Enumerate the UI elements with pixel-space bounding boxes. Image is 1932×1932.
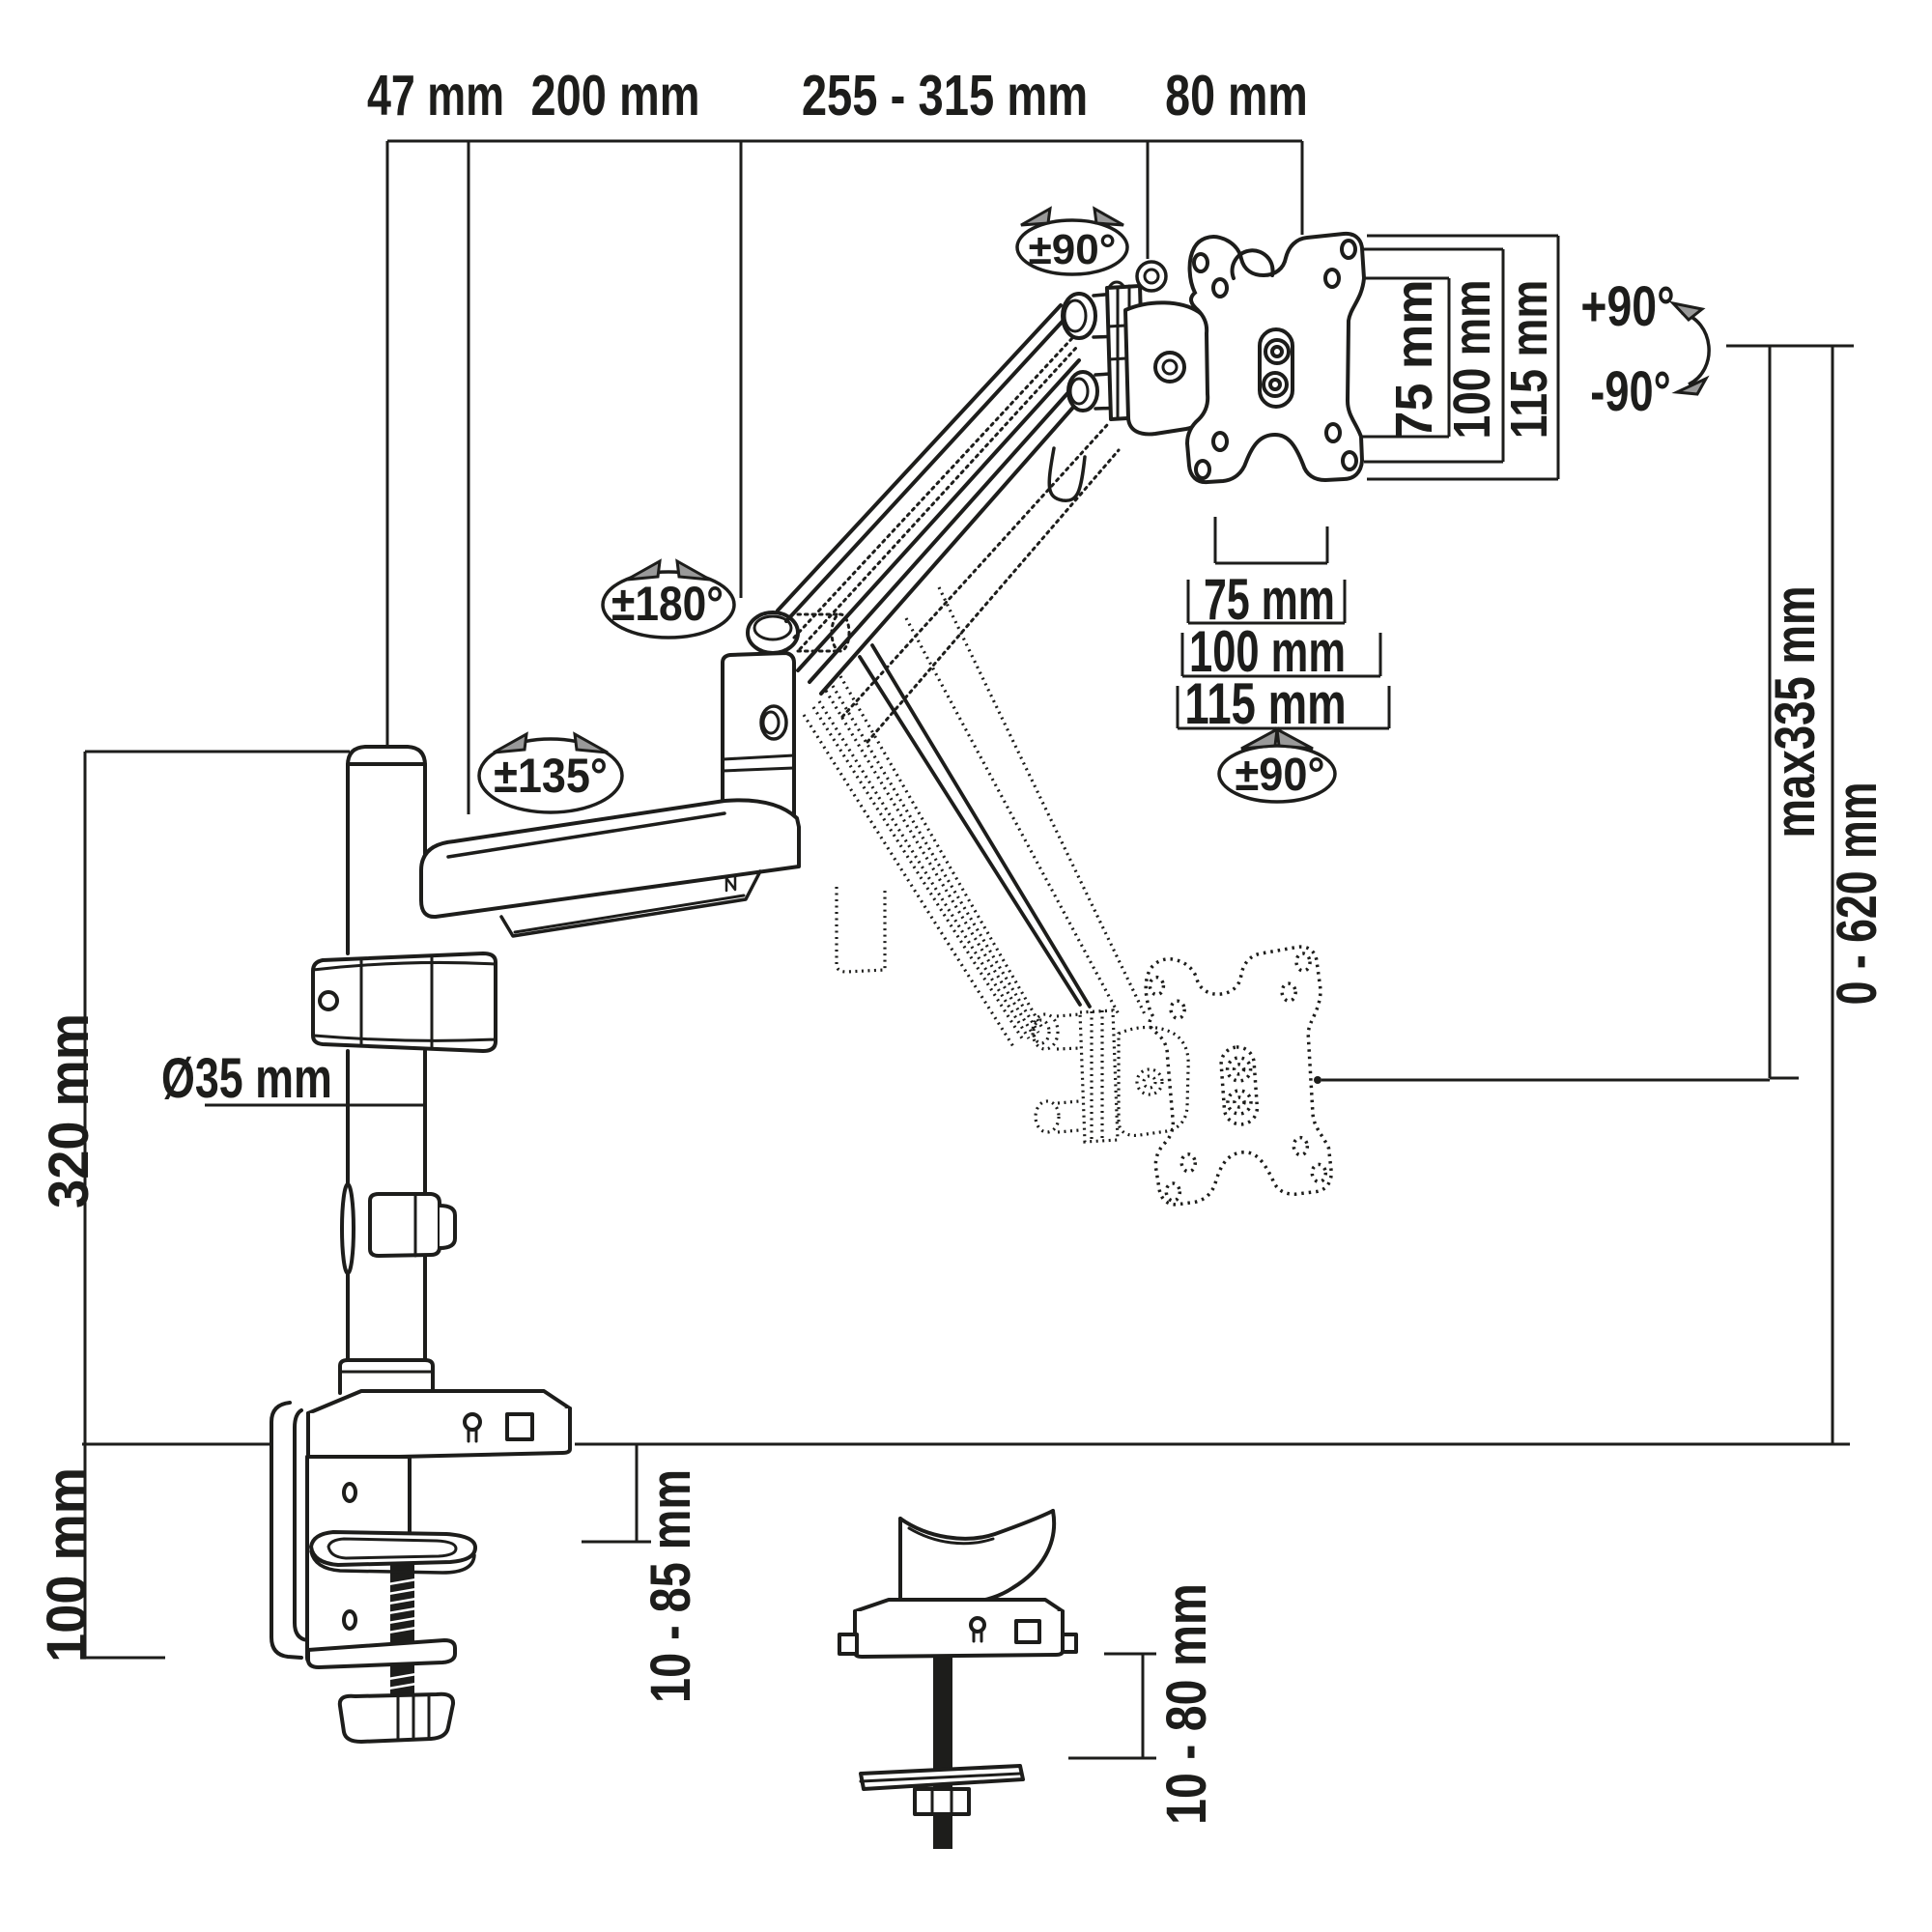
svg-text:max335 mm: max335 mm [1765, 585, 1827, 838]
svg-text:100 mm: 100 mm [35, 1467, 98, 1662]
svg-text:±135°: ±135° [494, 750, 608, 804]
svg-text:Ø35 mm: Ø35 mm [161, 1046, 332, 1109]
svg-text:200 mm: 200 mm [531, 65, 700, 128]
svg-text:+90°: +90° [1580, 275, 1674, 338]
svg-text:255 - 315 mm: 255 - 315 mm [802, 65, 1088, 128]
svg-text:±90°: ±90° [1236, 749, 1325, 801]
svg-text:80 mm: 80 mm [1165, 65, 1308, 128]
svg-text:320 mm: 320 mm [37, 1013, 99, 1208]
svg-text:10 - 80 mm: 10 - 80 mm [1156, 1583, 1218, 1825]
svg-text:-90°: -90° [1590, 361, 1670, 424]
svg-text:115 mm: 115 mm [1184, 672, 1346, 736]
svg-text:±180°: ±180° [611, 578, 724, 632]
svg-text:0 - 620 mm: 0 - 620 mm [1825, 782, 1888, 1006]
svg-text:100 mm: 100 mm [1443, 280, 1501, 440]
svg-text:115 mm: 115 mm [1499, 280, 1558, 439]
svg-text:±90°: ±90° [1029, 226, 1117, 273]
svg-text:75 mm: 75 mm [1385, 279, 1443, 439]
svg-text:10 - 85 mm: 10 - 85 mm [639, 1469, 702, 1703]
svg-text:47 mm: 47 mm [367, 65, 504, 128]
